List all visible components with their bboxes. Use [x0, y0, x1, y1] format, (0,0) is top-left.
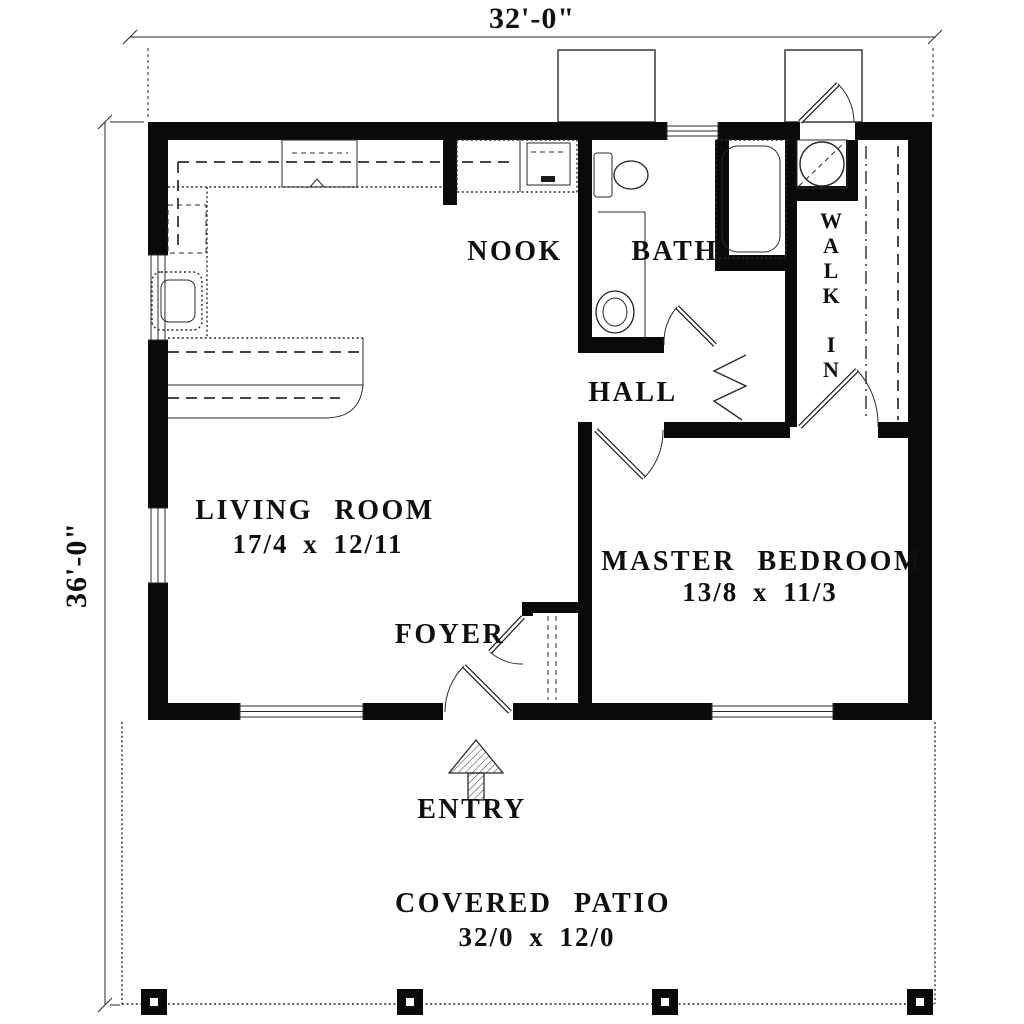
covered-patio-outline	[122, 722, 935, 1004]
wall-segment	[908, 122, 932, 720]
wall-segment	[148, 703, 240, 720]
room-label-hall: HALL	[588, 377, 677, 408]
window-bath-top	[667, 122, 718, 140]
patio-post	[141, 989, 167, 1015]
room-size-living-room: 17/4 x 12/11	[232, 529, 403, 559]
water-heater-fixture	[797, 140, 847, 188]
entry-label: ENTRY	[417, 794, 527, 825]
room-label-living-room: LIVING ROOM	[195, 495, 434, 526]
window-bedroom-bottom	[712, 703, 833, 720]
wall-segment	[513, 703, 712, 720]
wall-segment	[443, 140, 457, 205]
window-kitchen-left	[148, 255, 168, 340]
wall-segment	[833, 703, 930, 720]
foyer-closet-lines	[548, 616, 556, 700]
kitchen-sink-fixture	[152, 272, 202, 330]
wall-segment	[148, 340, 168, 508]
wall-segment	[578, 422, 592, 705]
room-size-covered-patio: 32/0 x 12/0	[458, 922, 615, 952]
pedestal-sink-fixture	[596, 291, 634, 333]
room-label-covered-patio: COVERED PATIO	[395, 888, 671, 919]
wall-segment	[878, 422, 908, 438]
patio-post	[652, 989, 678, 1015]
floor-plan-canvas: 32'-0" 36'-0"	[0, 0, 1024, 1024]
door-utility-exterior	[800, 84, 854, 122]
room-label-foyer: FOYER	[395, 619, 506, 650]
refrigerator-fixture	[282, 140, 357, 187]
door-entry	[445, 666, 510, 712]
wall-segment	[578, 140, 592, 353]
wall-segment	[578, 337, 664, 353]
room-label-master-bedroom: MASTER BEDROOM	[601, 546, 923, 577]
chimney-bumpout	[558, 50, 655, 122]
dimension-left: 36'-0"	[60, 115, 144, 1012]
patio-posts	[141, 989, 933, 1015]
wall-segment	[664, 422, 790, 438]
wall-segment	[148, 122, 667, 140]
range-fixture	[527, 143, 570, 185]
wall-segment	[846, 140, 858, 190]
overall-width-label: 32'-0"	[489, 2, 575, 35]
door-master-bedroom	[596, 430, 663, 478]
kitchen-counters	[152, 140, 443, 418]
toilet-fixture	[594, 153, 648, 197]
wall-segment	[522, 602, 533, 616]
entry-arrow	[449, 740, 503, 800]
exterior-walls	[148, 122, 932, 720]
wall-segment	[148, 122, 168, 255]
door-bath	[664, 307, 715, 345]
room-label-walk-in: WALKIN	[820, 208, 842, 382]
window-living-left	[148, 508, 168, 583]
floor-plan-page: 32'-0" 36'-0"	[0, 0, 1024, 1024]
wall-segment	[785, 140, 797, 427]
walk-in-closet-lines	[866, 146, 898, 420]
window-living-bottom	[240, 703, 363, 720]
dishwasher-fixture	[168, 205, 206, 253]
room-labels: NOOK BATH WALKIN HALL LIVING ROOM 17/4 x…	[195, 208, 922, 952]
wall-segment	[148, 583, 168, 720]
overall-height-label: 36'-0"	[60, 522, 93, 608]
patio-post	[907, 989, 933, 1015]
wall-segment	[363, 703, 443, 720]
room-size-master-bedroom: 13/8 x 11/3	[682, 577, 838, 607]
patio-post	[397, 989, 423, 1015]
room-label-nook: NOOK	[467, 236, 563, 267]
room-label-bath: BATH	[631, 236, 718, 267]
linen-closet-bifold-door	[714, 355, 746, 420]
wall-segment	[718, 122, 800, 140]
nook-counter	[457, 140, 577, 192]
kitchen-bar-counter	[168, 338, 363, 418]
utility-closet-bumpout	[785, 50, 862, 122]
